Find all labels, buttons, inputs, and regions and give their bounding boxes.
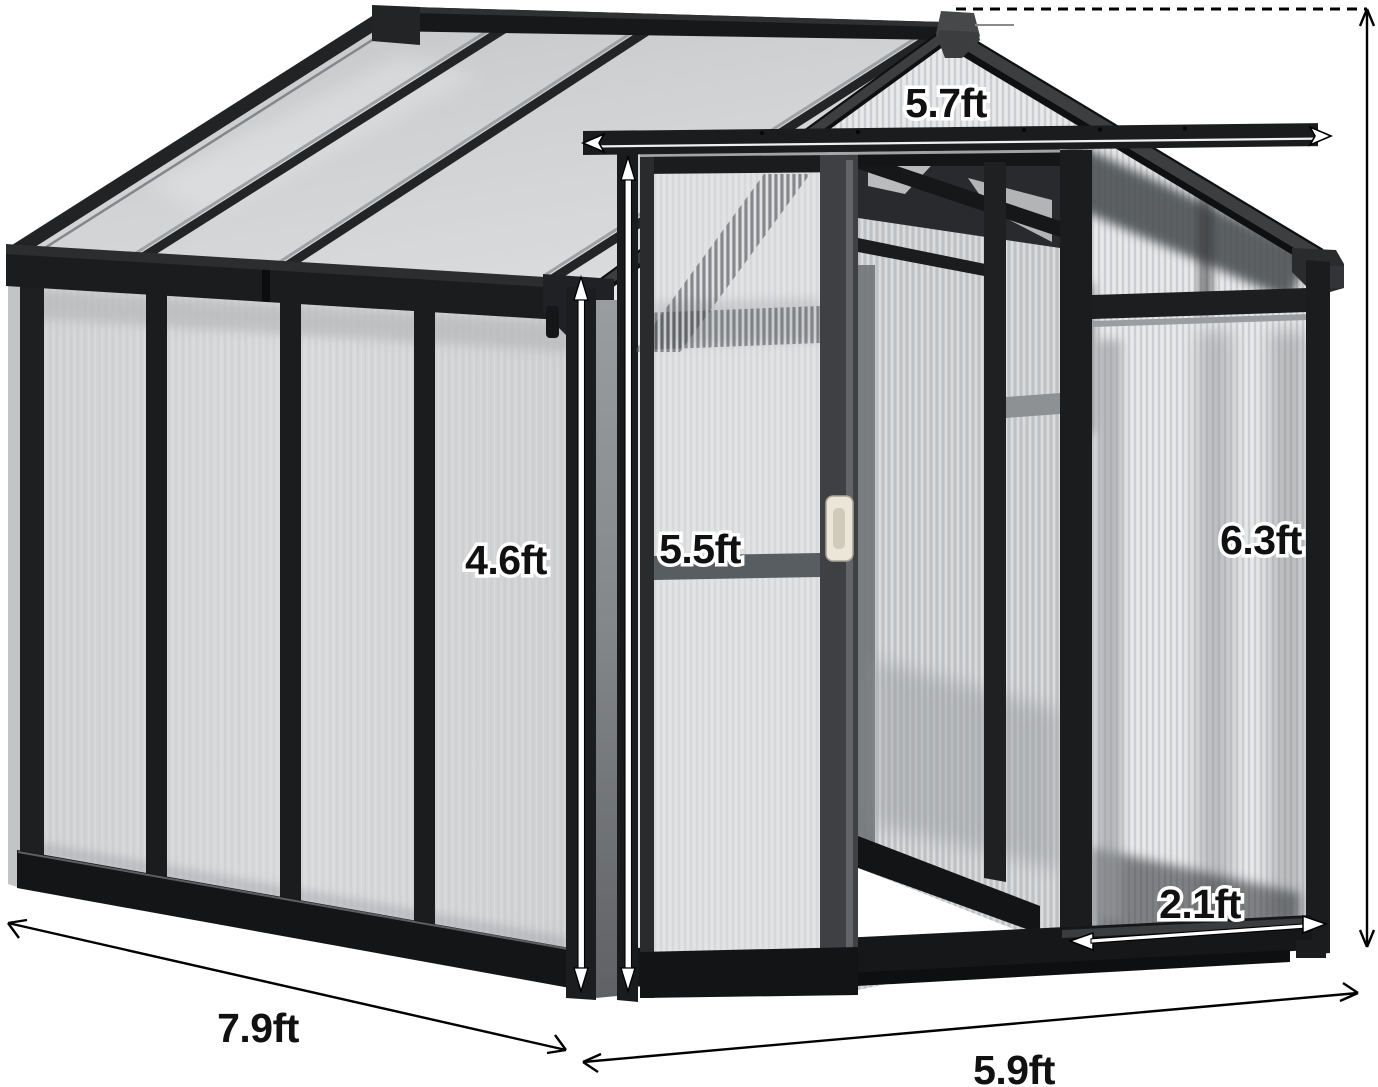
svg-text:5.9ft: 5.9ft	[973, 1047, 1056, 1087]
svg-text:5.7ft: 5.7ft	[905, 80, 988, 126]
svg-text:6.3ft: 6.3ft	[1220, 517, 1303, 563]
svg-text:2.1ft: 2.1ft	[1159, 881, 1242, 927]
svg-text:4.6ft: 4.6ft	[465, 537, 548, 583]
svg-text:5.5ft: 5.5ft	[659, 526, 742, 572]
svg-text:7.9ft: 7.9ft	[217, 1005, 300, 1051]
